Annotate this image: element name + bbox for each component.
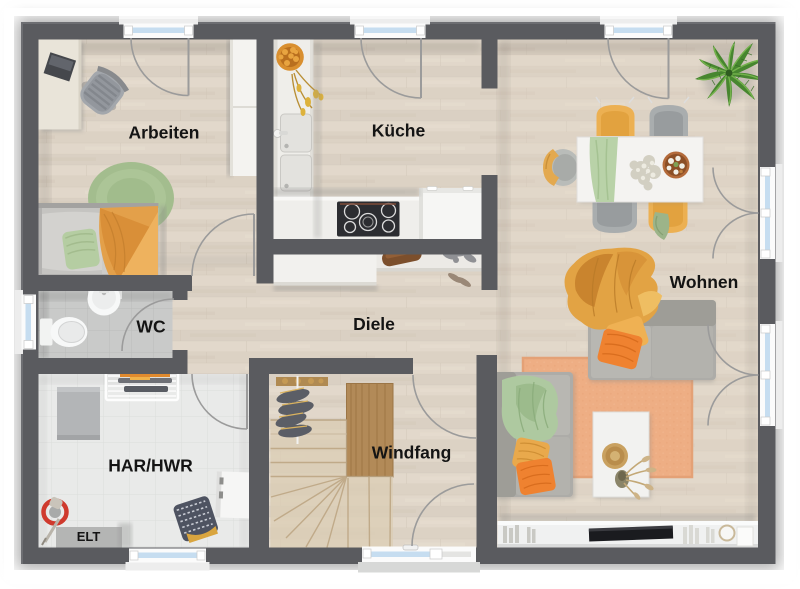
svg-text:Arbeiten: Arbeiten bbox=[129, 123, 200, 143]
svg-text:Wohnen: Wohnen bbox=[670, 272, 739, 292]
svg-text:HAR/HWR: HAR/HWR bbox=[108, 456, 193, 476]
svg-text:WC: WC bbox=[136, 317, 166, 337]
svg-text:Windfang: Windfang bbox=[372, 443, 452, 463]
svg-text:Diele: Diele bbox=[353, 314, 395, 334]
svg-text:ELT: ELT bbox=[77, 529, 101, 544]
svg-text:Küche: Küche bbox=[372, 121, 426, 141]
